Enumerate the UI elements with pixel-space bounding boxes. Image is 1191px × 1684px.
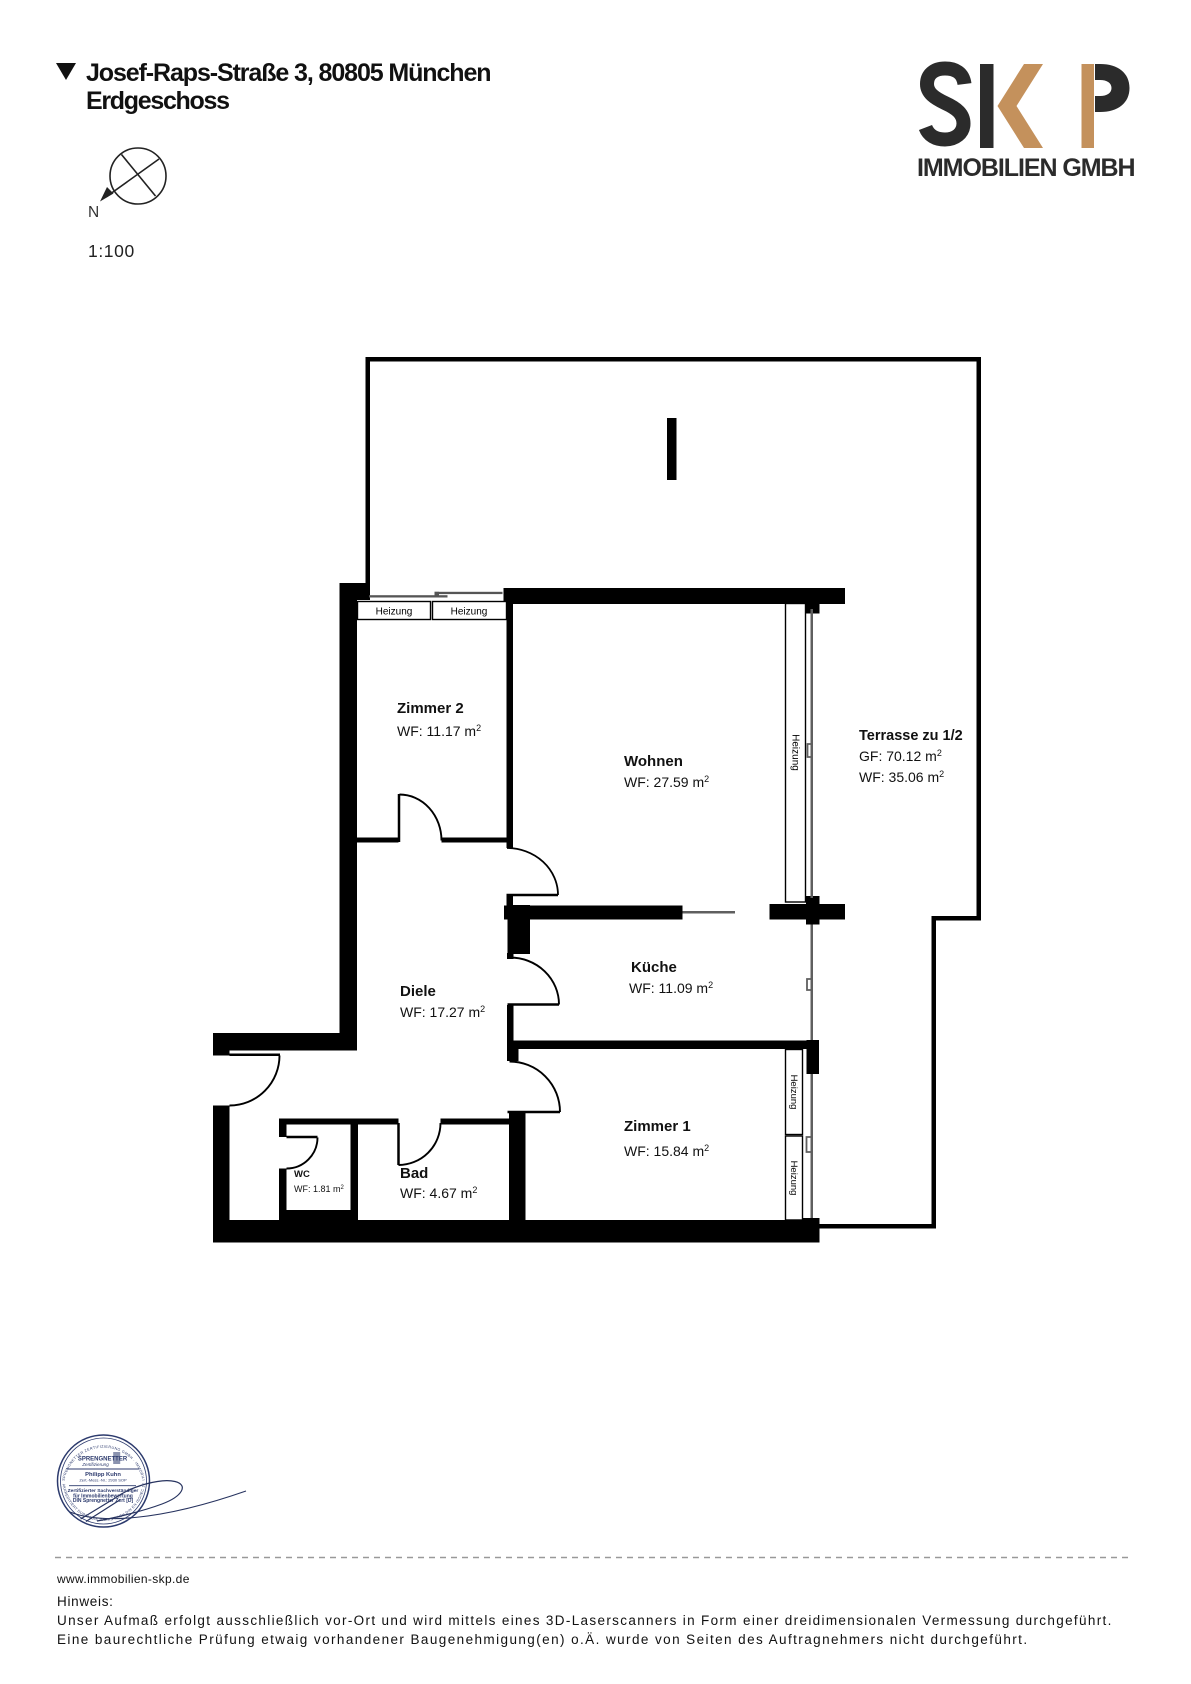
svg-text:Hinweis:: Hinweis: xyxy=(57,1594,114,1609)
svg-text:WF: 1.81 m2: WF: 1.81 m2 xyxy=(294,1184,345,1194)
svg-text:WF: 15.84 m2: WF: 15.84 m2 xyxy=(624,1143,709,1159)
svg-text:GF: 70.12 m2: GF: 70.12 m2 xyxy=(859,748,942,764)
svg-text:Josef-Raps-Straße 3, 80805 Mün: Josef-Raps-Straße 3, 80805 München xyxy=(86,59,490,87)
svg-text:SPRENGNETTER ZERTIFIZIERUNG GM: SPRENGNETTER ZERTIFIZIERUNG GMBH · IMMOB… xyxy=(0,0,145,1481)
svg-text:IMMOBILIEN GMBH: IMMOBILIEN GMBH xyxy=(917,154,1135,182)
svg-text:WF: 17.27 m2: WF: 17.27 m2 xyxy=(400,1004,485,1020)
svg-text:Bad: Bad xyxy=(400,1165,428,1182)
svg-text:WC: WC xyxy=(294,1169,310,1180)
svg-text:1:100: 1:100 xyxy=(88,241,135,261)
svg-text:Zert.-Mess.-Nr.: 2930 SOP: Zert.-Mess.-Nr.: 2930 SOP xyxy=(79,1478,127,1483)
svg-text:www.immobilien-skp.de: www.immobilien-skp.de xyxy=(56,1572,190,1586)
svg-text:WF: 27.59 m2: WF: 27.59 m2 xyxy=(624,774,709,790)
svg-text:Diele: Diele xyxy=(400,983,436,1000)
svg-text:Zimmer 2: Zimmer 2 xyxy=(397,700,464,717)
svg-text:Wohnen: Wohnen xyxy=(624,753,683,770)
svg-text:Eine baurechtliche Prüfung etw: Eine baurechtliche Prüfung etwaig vorhan… xyxy=(57,1632,1029,1647)
svg-text:Heizung: Heizung xyxy=(788,1161,799,1196)
svg-text:Zimmer 1: Zimmer 1 xyxy=(624,1118,691,1135)
svg-text:Unser Aufmaß erfolgt ausschlie: Unser Aufmaß erfolgt ausschließlich vor-… xyxy=(57,1613,1113,1628)
svg-text:Erdgeschoss: Erdgeschoss xyxy=(86,87,229,115)
svg-text:Heizung: Heizung xyxy=(788,1075,799,1110)
svg-text:Terrasse zu 1/2: Terrasse zu 1/2 xyxy=(859,728,963,744)
svg-text:DIN Sprengnetter Zert [D]: DIN Sprengnetter Zert [D] xyxy=(73,1498,134,1504)
svg-text:WF: 4.67 m2: WF: 4.67 m2 xyxy=(400,1185,477,1201)
svg-text:WF: 35.06 m2: WF: 35.06 m2 xyxy=(859,769,944,785)
svg-text:Küche: Küche xyxy=(631,959,677,976)
svg-text:AKKREDITIERT DURCH DIE DAKKS N: AKKREDITIERT DURCH DIE DAKKS NACH DIN EN… xyxy=(0,0,146,1522)
svg-text:WF: 11.09 m2: WF: 11.09 m2 xyxy=(629,980,713,996)
svg-text:Heizung: Heizung xyxy=(451,607,488,618)
svg-text:Zertifizierung: Zertifizierung xyxy=(81,1462,109,1467)
svg-text:Heizung: Heizung xyxy=(790,734,801,771)
svg-text:Heizung: Heizung xyxy=(376,607,413,618)
svg-text:WF: 11.17 m2: WF: 11.17 m2 xyxy=(397,723,481,739)
svg-text:N: N xyxy=(88,204,99,221)
